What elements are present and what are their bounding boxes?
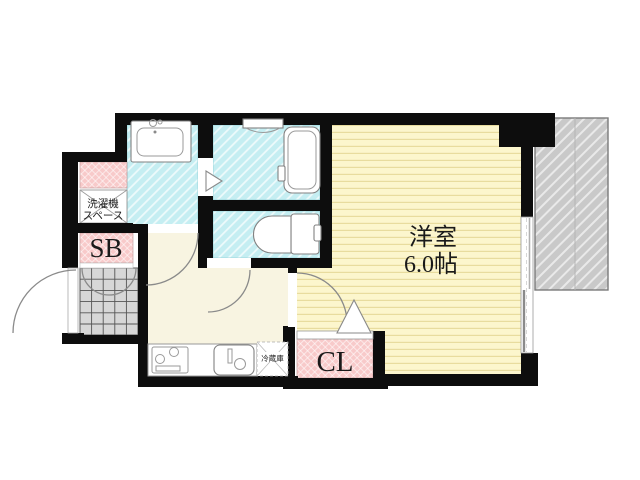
bathtub <box>278 127 320 193</box>
pipe-space-box <box>80 162 127 188</box>
toilet-door-opening <box>207 258 251 268</box>
washbasin-room-door-opening <box>148 224 198 233</box>
washing-machine-label-line1: 洗濯機 <box>87 197 119 210</box>
wall-notch-top-right <box>499 113 555 147</box>
western-room-size-label: 6.0帖 <box>404 251 458 278</box>
refrigerator-label: 冷蔵庫 <box>261 353 284 363</box>
western-room-name-label: 洋室 <box>409 224 457 251</box>
floorplan-drawing: 洋室 6.0帖 SB CL 洗濯機 スペース 冷蔵庫 <box>0 0 640 480</box>
window-symbol <box>521 217 533 353</box>
entry-door-arc <box>13 270 76 333</box>
western-room-door-opening <box>288 273 297 327</box>
kitchen-counter <box>148 344 257 376</box>
washing-machine-label-line2: スペース <box>83 211 124 222</box>
floorplan-page: 洋室 6.0帖 SB CL 洗濯機 スペース 冷蔵庫 <box>0 0 640 480</box>
shoe-box-label: SB <box>89 233 122 263</box>
washbasin <box>131 120 191 163</box>
entry-door-leaf <box>68 268 78 333</box>
shoe-box-front <box>80 263 133 268</box>
toilet <box>254 214 322 254</box>
closet-label: CL <box>316 346 353 378</box>
kitchen-sink <box>214 345 254 375</box>
